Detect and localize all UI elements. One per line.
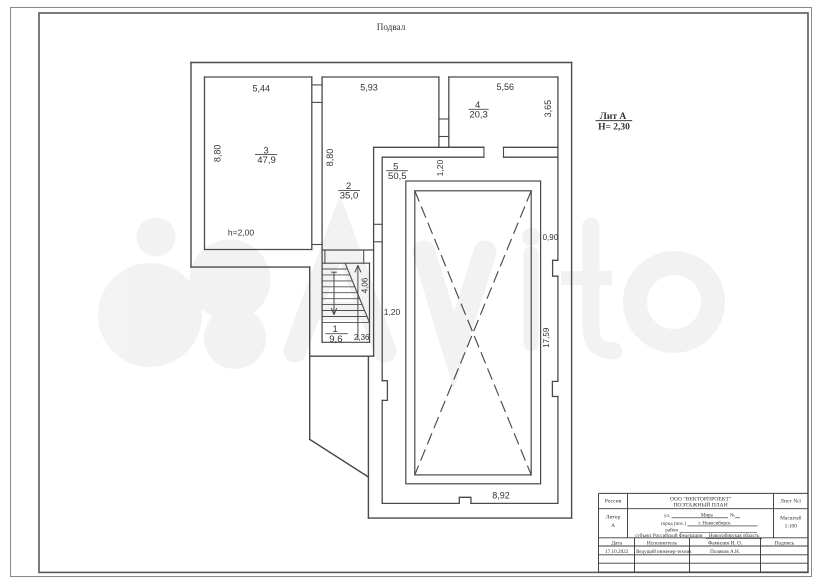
svg-text:Лист №1: Лист №1: [780, 499, 801, 505]
svg-text:район: район: [665, 529, 678, 534]
svg-text:Литер: Литер: [606, 515, 621, 521]
svg-text:Россия: Россия: [605, 499, 622, 505]
svg-text:47,9: 47,9: [257, 155, 276, 166]
svg-text:Подвал: Подвал: [377, 22, 406, 32]
svg-text:17,59: 17,59: [542, 327, 551, 348]
svg-text:Подпись: Подпись: [775, 541, 795, 547]
svg-text:50,5: 50,5: [388, 171, 407, 182]
svg-text:1,20: 1,20: [384, 307, 401, 317]
svg-text:Дата: Дата: [611, 541, 622, 547]
svg-text:субъект Российской Федерации: субъект Российской Федерации: [635, 534, 702, 539]
svg-text:Ведущий инженер-техник: Ведущий инженер-техник: [636, 550, 692, 555]
svg-text:9,6: 9,6: [329, 334, 342, 345]
svg-text:5,56: 5,56: [497, 82, 515, 92]
svg-text:2,36: 2,36: [354, 333, 370, 342]
svg-text:35,0: 35,0: [340, 191, 359, 202]
svg-text:17.10.2022: 17.10.2022: [605, 549, 629, 555]
svg-text:А: А: [611, 523, 615, 529]
svg-text:Фамилия И. О.: Фамилия И. О.: [708, 541, 742, 547]
svg-text:3,65: 3,65: [543, 100, 553, 118]
svg-text:Н= 2,30: Н= 2,30: [598, 122, 630, 132]
svg-text:5,44: 5,44: [253, 83, 271, 93]
svg-text:0,90: 0,90: [543, 233, 559, 242]
svg-text:8,80: 8,80: [212, 145, 222, 163]
svg-text:г. Новосибирск: г. Новосибирск: [698, 522, 731, 527]
svg-text:Исполнитель: Исполнитель: [647, 541, 678, 547]
svg-text:h=2,00: h=2,00: [228, 227, 255, 237]
svg-text:8,80: 8,80: [325, 149, 335, 167]
svg-text:город (пос.): город (пос.): [661, 522, 687, 527]
svg-text:1:100: 1:100: [785, 523, 798, 529]
svg-text:ПОЭТАЖНЫЙ ПЛАН: ПОЭТАЖНЫЙ ПЛАН: [673, 500, 727, 508]
svg-text:1,20: 1,20: [435, 160, 445, 177]
svg-text:8,92: 8,92: [492, 491, 510, 501]
svg-text:20,3: 20,3: [469, 109, 488, 120]
svg-text:Масштаб: Масштаб: [780, 515, 802, 522]
svg-text:ул.: ул.: [664, 514, 670, 519]
svg-text:Поляков А.Н.: Поляков А.Н.: [710, 549, 740, 555]
svg-text:ООО "ВЕКТОРПРОЕКТ": ООО "ВЕКТОРПРОЕКТ": [670, 496, 731, 502]
svg-text:№: №: [730, 513, 735, 519]
svg-text:Мира: Мира: [701, 514, 714, 519]
svg-text:5,93: 5,93: [360, 83, 378, 93]
svg-text:4,06: 4,06: [360, 277, 369, 293]
